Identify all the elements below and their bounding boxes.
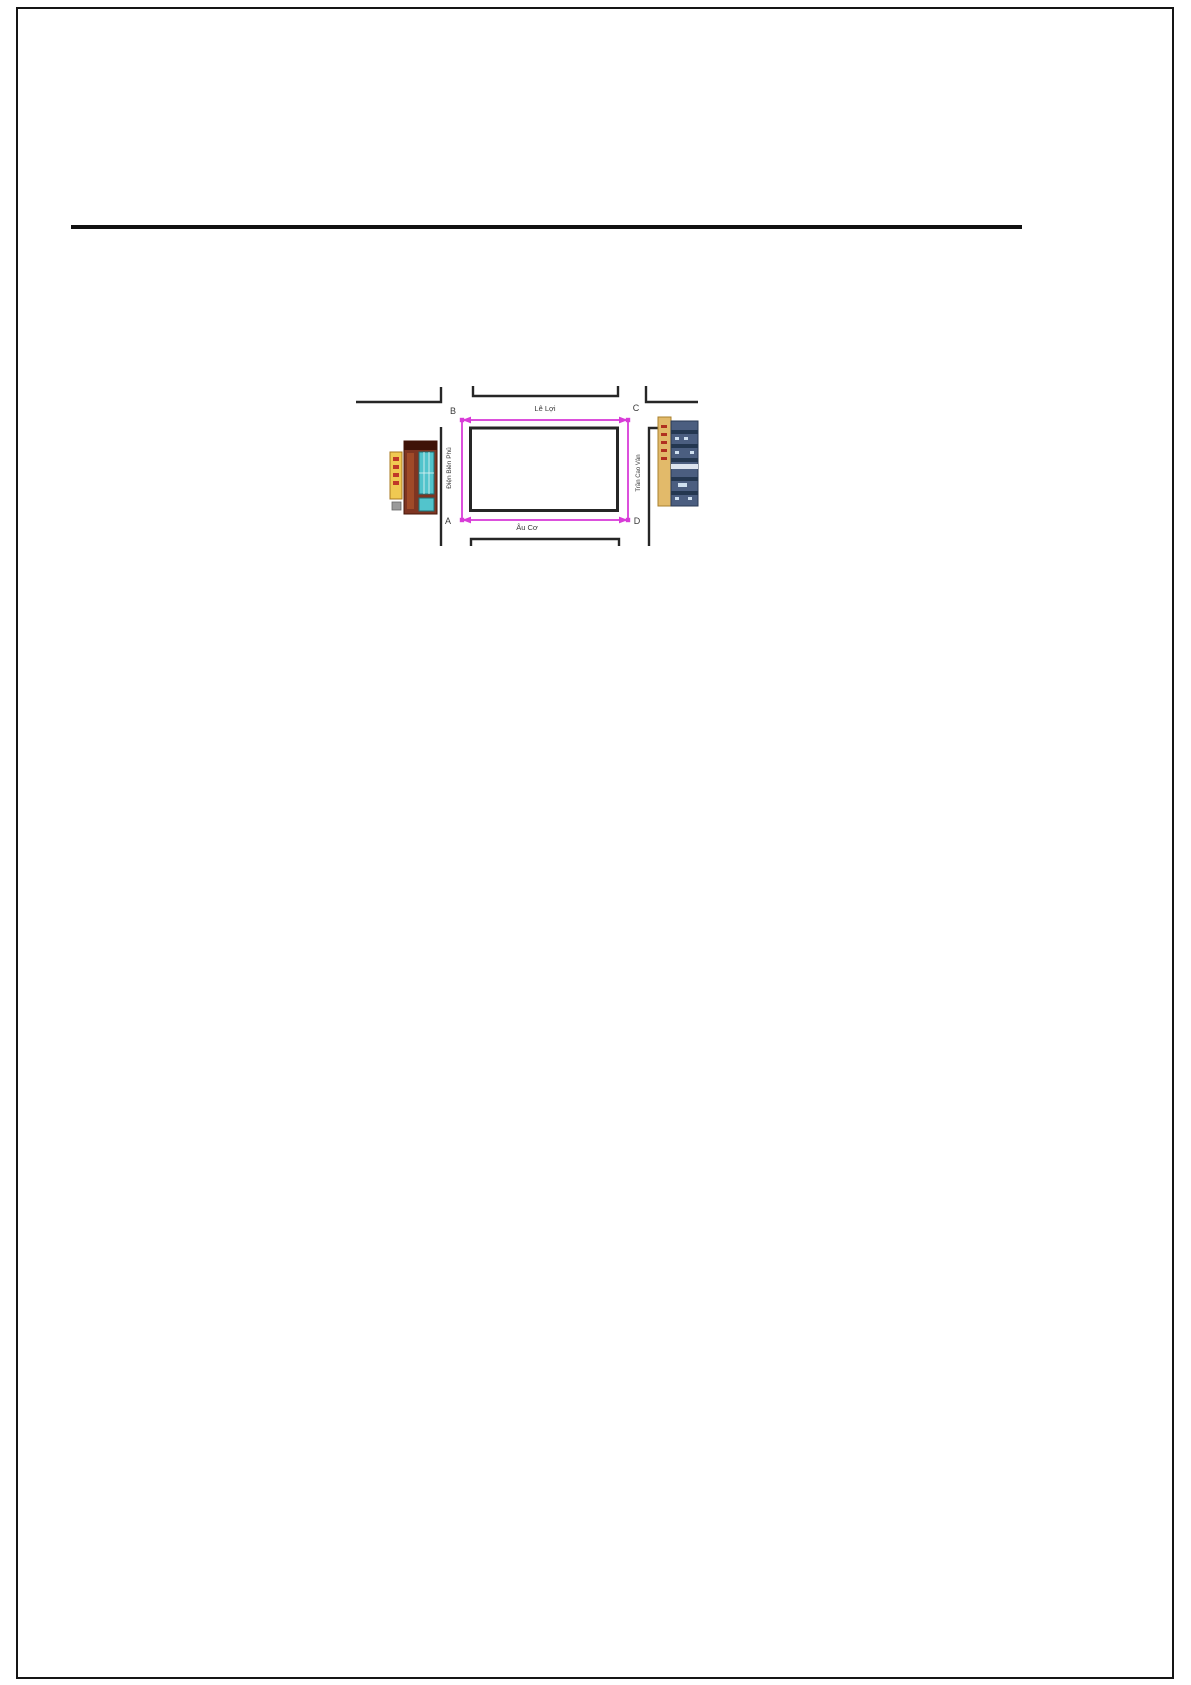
northwest-block-corner — [356, 387, 441, 402]
arrowhead-bottom-left — [462, 517, 471, 524]
corner-label-b: B — [450, 406, 456, 416]
northeast-block-corner — [646, 386, 698, 402]
apartment-block-image — [658, 417, 698, 506]
street-map-figure: B C A D Lê Lợi Âu Cơ Điện Biên Phủ Trần … — [340, 380, 710, 555]
street-map-svg: B C A D Lê Lợi Âu Cơ Điện Biên Phủ Trần … — [340, 380, 710, 555]
arrowhead-bottom-right — [619, 517, 628, 524]
arrowhead-top-right — [619, 417, 628, 424]
apartment-sign — [658, 417, 671, 506]
south-block-edge — [471, 539, 619, 546]
horizontal-rule — [71, 225, 1022, 229]
north-block-edge — [473, 386, 618, 396]
corner-label-d: D — [634, 516, 641, 526]
page-border — [16, 7, 1174, 1679]
arrowhead-top-left — [462, 417, 471, 424]
document-page: B C A D Lê Lợi Âu Cơ Điện Biên Phủ Trần … — [0, 0, 1191, 1685]
street-label-right: Trần Cao Vân — [636, 454, 642, 491]
central-block — [471, 428, 618, 511]
street-label-left: Điện Biên Phủ — [445, 447, 453, 489]
shop-box — [392, 502, 401, 510]
corner-label-c: C — [633, 403, 640, 413]
shop-storefront-image — [390, 441, 437, 514]
street-label-top: Lê Lợi — [534, 404, 556, 413]
corner-label-a: A — [445, 516, 451, 526]
street-label-bottom: Âu Cơ — [516, 523, 538, 532]
